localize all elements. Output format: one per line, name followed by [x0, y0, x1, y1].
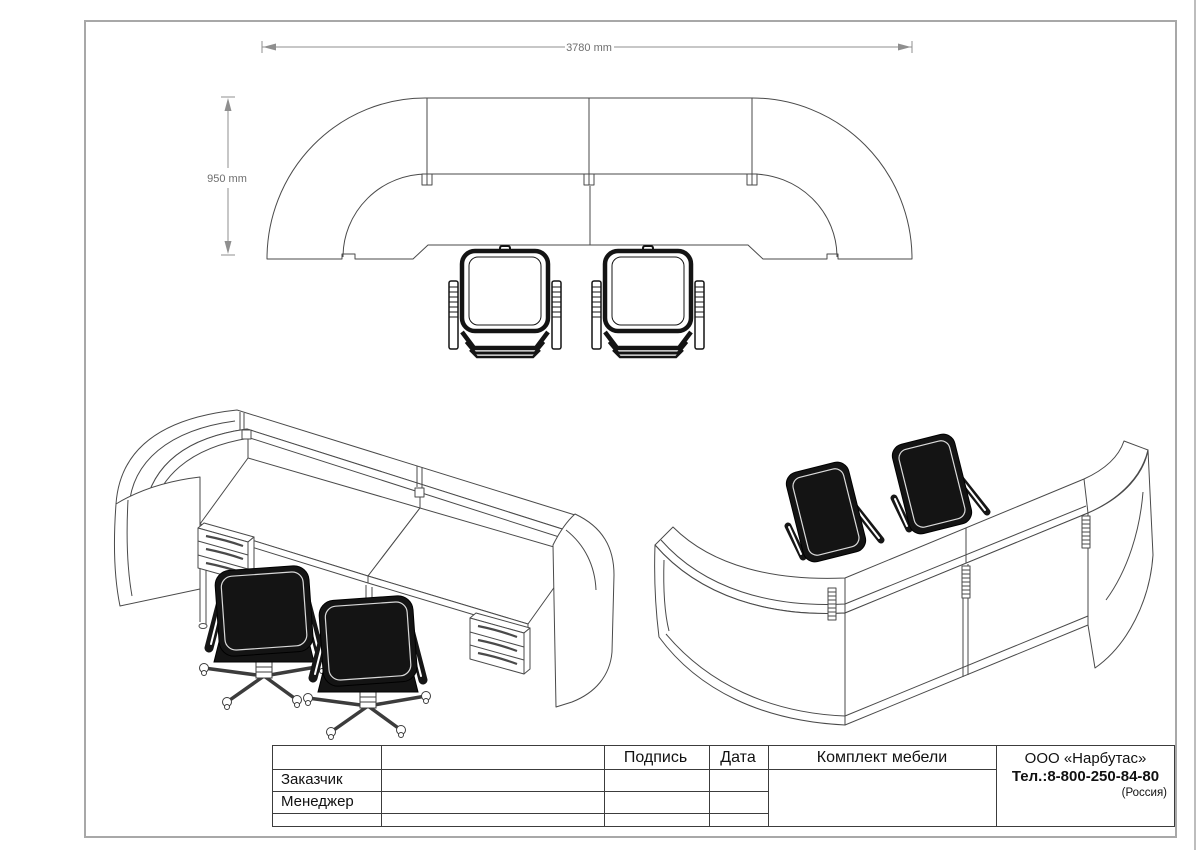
date-header: Дата: [708, 746, 768, 769]
dim-height-label: 950 mm: [207, 173, 247, 185]
title-block: Подпись Дата Комплект мебели Заказчик Ме…: [272, 745, 1175, 827]
office-chair-front-1: [784, 460, 881, 565]
company-info: ООО «Нарбутас» Тел.:8-800-250-84-80 (Рос…: [996, 746, 1175, 826]
product-title: Комплект мебели: [768, 746, 996, 769]
company-name: ООО «Нарбутас»: [996, 750, 1175, 767]
title-block-row-line: [273, 769, 996, 770]
right-end-panel: [553, 514, 614, 707]
furniture-technical-drawing: 3780 mm 950 mm: [0, 0, 1200, 850]
office-chair-plan-2: [592, 246, 704, 357]
office-chair-iso-2: [304, 595, 431, 740]
office-chair-iso-1: [200, 565, 327, 710]
office-chair-plan-1: [449, 246, 561, 357]
office-chair-front-2: [890, 432, 987, 537]
title-block-divider: [381, 746, 382, 826]
dim-width-label: 3780 mm: [566, 42, 612, 54]
title-block-row-line: [273, 813, 768, 814]
company-country: (Россия): [996, 787, 1175, 799]
drawing-sheet: { "sheet": { "background": "#ffffff", "b…: [0, 0, 1200, 850]
customer-label: Заказчик: [281, 769, 379, 791]
signature-header: Подпись: [603, 746, 708, 769]
company-phone: Тел.:8-800-250-84-80: [996, 768, 1175, 785]
manager-label: Менеджер: [281, 791, 379, 813]
plan-view: [267, 98, 912, 259]
